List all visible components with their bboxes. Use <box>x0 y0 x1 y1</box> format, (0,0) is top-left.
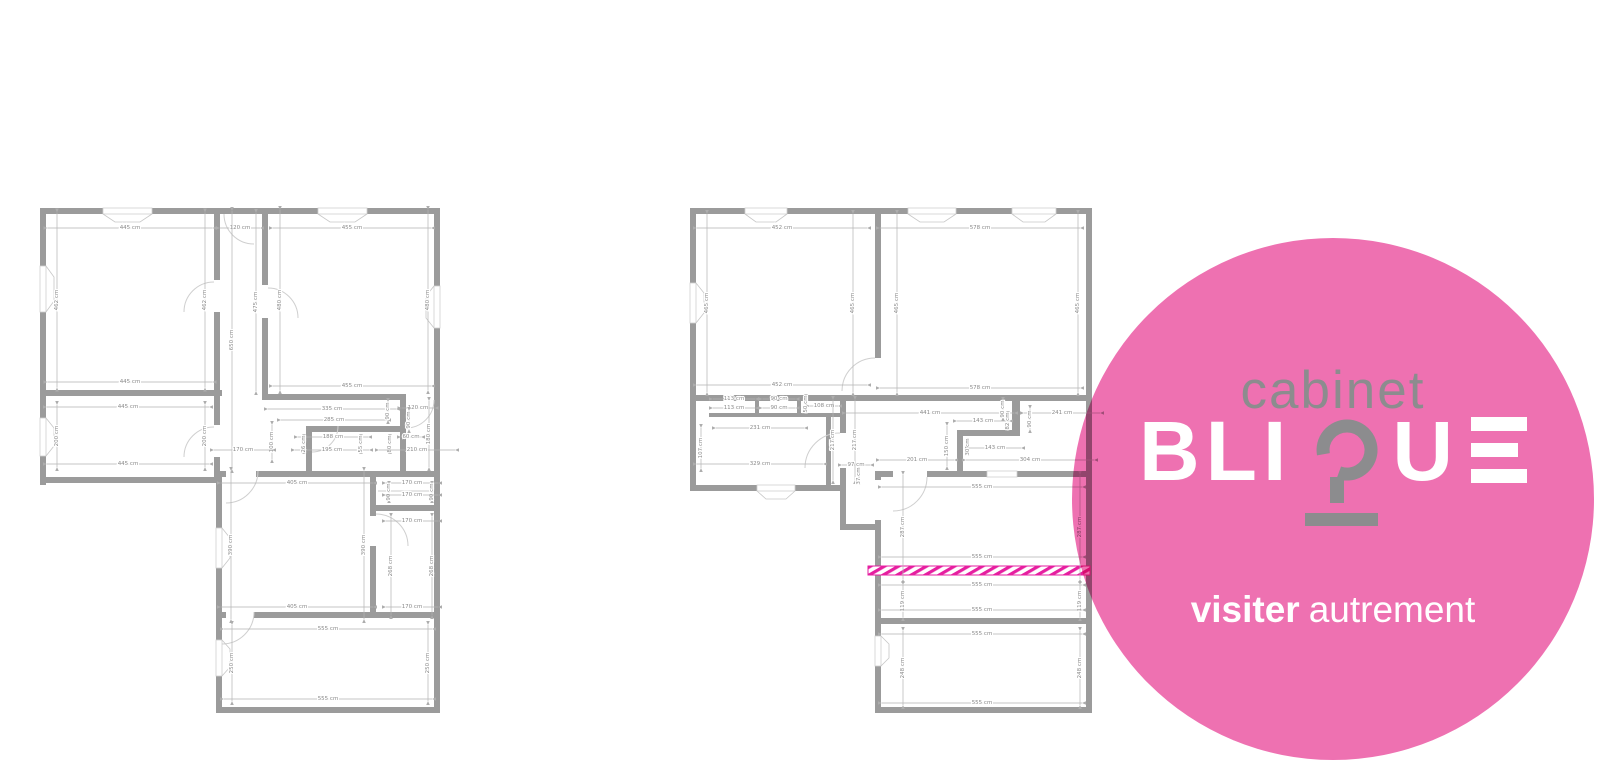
svg-text:335 cm: 335 cm <box>322 406 343 412</box>
windows-left <box>40 208 440 676</box>
dimension-label: 555 cm <box>882 484 1082 490</box>
dimensions-left: 445 cm120 cm455 cm462 cm462 cm650 cm475 … <box>47 210 455 702</box>
svg-text:170 cm: 170 cm <box>402 492 423 498</box>
svg-text:188 cm: 188 cm <box>323 434 344 440</box>
svg-text:441 cm: 441 cm <box>920 410 941 416</box>
dimension-label: 287 cm <box>900 475 906 579</box>
dimension-label: 82 cm <box>1005 412 1011 429</box>
dimension-label: 90 cm <box>1027 409 1033 429</box>
svg-text:210 cm: 210 cm <box>407 447 428 453</box>
svg-text:90 cm: 90 cm <box>386 483 392 500</box>
svg-text:26 cm: 26 cm <box>301 435 307 452</box>
dimension-label: 555 cm <box>882 554 1082 560</box>
svg-text:90 cm: 90 cm <box>429 483 435 500</box>
dimension-label: 107 cm <box>698 428 704 468</box>
svg-text:555 cm: 555 cm <box>972 582 993 588</box>
walls-left <box>40 208 440 713</box>
svg-text:445 cm: 445 cm <box>118 404 139 410</box>
dimensions-right: 452 cm578 cm465 cm465 cm465 cm465 cm452 … <box>697 214 1100 706</box>
dimension-label: 555 cm <box>882 631 1082 637</box>
dimension-label: 555 cm <box>882 700 1082 706</box>
svg-text:60 cm: 60 cm <box>402 434 419 440</box>
dimension-label: 445 cm <box>47 461 209 467</box>
tagline-visiter: visiter <box>1191 589 1300 630</box>
svg-text:231 cm: 231 cm <box>750 425 771 431</box>
svg-text:90 cm: 90 cm <box>385 402 391 419</box>
svg-text:195 cm: 195 cm <box>322 447 343 453</box>
dimension-label: 26 cm <box>301 435 307 452</box>
brand-e-icon <box>1471 417 1527 483</box>
floorplan-left: 445 cm120 cm455 cm462 cm462 cm650 cm475 … <box>40 208 455 713</box>
svg-text:90 cm: 90 cm <box>770 396 787 402</box>
windows-right <box>690 208 1056 666</box>
svg-text:200 cm: 200 cm <box>54 426 60 447</box>
svg-text:90 cm: 90 cm <box>1027 410 1033 427</box>
svg-text:113 cm: 113 cm <box>724 396 745 402</box>
dimension-label: 335 cm <box>268 406 396 412</box>
dimension-label: 113 cm <box>713 405 755 411</box>
dimension-label: 405 cm <box>221 480 373 486</box>
dimension-label: 97 cm <box>842 462 870 468</box>
svg-text:462 cm: 462 cm <box>54 290 60 311</box>
svg-text:555 cm: 555 cm <box>972 700 993 706</box>
svg-text:455 cm: 455 cm <box>342 225 363 231</box>
dimension-label: 452 cm <box>697 382 867 388</box>
dimension-label: 231 cm <box>716 425 804 431</box>
dimension-label: 90 cm <box>406 411 412 429</box>
svg-text:250 cm: 250 cm <box>425 653 431 674</box>
dimension-label: 578 cm <box>880 385 1080 391</box>
svg-text:217 cm: 217 cm <box>830 430 836 451</box>
dimension-label: 650 cm <box>229 211 235 469</box>
svg-text:170 cm: 170 cm <box>233 447 254 453</box>
svg-text:455 cm: 455 cm <box>342 383 363 389</box>
dimension-label: 90 cm <box>763 405 796 411</box>
brand-q-icon <box>1304 417 1380 529</box>
dimension-label: 248 cm <box>900 631 906 705</box>
dimension-label: 201 cm <box>880 457 954 463</box>
svg-text:100 cm: 100 cm <box>269 432 275 453</box>
svg-text:180 cm: 180 cm <box>426 424 432 445</box>
svg-text:480 cm: 480 cm <box>425 290 431 311</box>
dimension-label: 250 cm <box>229 625 235 701</box>
dimension-label: 480 cm <box>277 210 283 390</box>
dimension-label: 390 cm <box>228 471 234 619</box>
dimension-label: 30 cm <box>965 438 971 455</box>
svg-text:108 cm: 108 cm <box>814 403 835 409</box>
dimension-label: 60 cm <box>401 434 421 440</box>
brand-letter-u: U <box>1392 417 1459 485</box>
svg-text:465 cm: 465 cm <box>850 293 856 314</box>
svg-text:143 cm: 143 cm <box>985 445 1006 451</box>
dimension-label: 445 cm <box>48 225 213 231</box>
svg-text:82 cm: 82 cm <box>1005 412 1011 429</box>
dimension-label: 329 cm <box>697 461 823 467</box>
svg-text:90 cm: 90 cm <box>770 405 787 411</box>
dimension-label: 170 cm <box>214 447 272 453</box>
dimension-label: 465 cm <box>894 214 900 392</box>
dimension-label: 441 cm <box>846 410 1014 416</box>
svg-text:445 cm: 445 cm <box>120 379 141 385</box>
svg-text:650 cm: 650 cm <box>229 330 235 351</box>
dimension-label: 555 cm <box>224 626 432 632</box>
dimension-label: 462 cm <box>202 213 208 388</box>
dimension-label: 455 cm <box>273 383 431 389</box>
svg-text:55 cm: 55 cm <box>358 435 364 452</box>
svg-text:30 cm: 30 cm <box>965 438 971 455</box>
svg-text:555 cm: 555 cm <box>972 607 993 613</box>
dimension-label: 480 cm <box>425 210 431 390</box>
svg-text:170 cm: 170 cm <box>402 480 423 486</box>
svg-text:465 cm: 465 cm <box>894 293 900 314</box>
dimension-label: 555 cm <box>882 582 1082 588</box>
svg-text:555 cm: 555 cm <box>318 696 339 702</box>
dimension-label: 285 cm <box>281 417 387 423</box>
svg-text:578 cm: 578 cm <box>970 385 991 391</box>
svg-text:555 cm: 555 cm <box>972 631 993 637</box>
dimension-label: 455 cm <box>273 225 431 231</box>
svg-text:201 cm: 201 cm <box>907 457 928 463</box>
dimension-label: 390 cm <box>361 471 367 619</box>
svg-text:50 cm: 50 cm <box>803 395 809 412</box>
dimension-label: 250 cm <box>425 625 431 701</box>
svg-text:285 cm: 285 cm <box>324 417 345 423</box>
svg-text:445 cm: 445 cm <box>120 225 141 231</box>
dimension-label: 445 cm <box>47 404 209 410</box>
svg-text:287 cm: 287 cm <box>900 517 906 538</box>
svg-text:405 cm: 405 cm <box>287 604 308 610</box>
svg-text:143 cm: 143 cm <box>973 418 994 424</box>
tagline-autrement: autrement <box>1309 589 1476 630</box>
svg-text:390 cm: 390 cm <box>228 535 234 556</box>
dimension-label: 578 cm <box>880 225 1080 231</box>
dimension-label: 465 cm <box>704 214 710 392</box>
svg-text:268 cm: 268 cm <box>388 556 394 577</box>
dimension-label: 143 cm <box>969 445 1021 451</box>
page: 445 cm120 cm455 cm462 cm462 cm650 cm475 … <box>0 0 1600 765</box>
svg-text:445 cm: 445 cm <box>118 461 139 467</box>
dimension-label: 90 cm <box>386 483 392 500</box>
dimension-label: 475 cm <box>253 213 259 391</box>
highlight-strip <box>868 566 1090 575</box>
svg-text:120 cm: 120 cm <box>230 225 251 231</box>
dimension-label: 108 cm <box>810 403 838 409</box>
svg-text:170 cm: 170 cm <box>402 604 423 610</box>
dimension-label: 405 cm <box>221 604 373 610</box>
svg-text:390 cm: 390 cm <box>361 535 367 556</box>
svg-text:217 cm: 217 cm <box>852 430 858 451</box>
svg-text:90 cm: 90 cm <box>406 411 412 428</box>
svg-text:170 cm: 170 cm <box>402 518 423 524</box>
svg-text:250 cm: 250 cm <box>229 653 235 674</box>
svg-text:465 cm: 465 cm <box>704 293 710 314</box>
svg-text:578 cm: 578 cm <box>970 225 991 231</box>
logo-brand: BLI U <box>1139 417 1527 529</box>
svg-text:555 cm: 555 cm <box>318 626 339 632</box>
svg-text:268 cm: 268 cm <box>429 556 435 577</box>
svg-text:120 cm: 120 cm <box>408 405 429 411</box>
dimension-label: 37 cm <box>856 467 862 484</box>
svg-text:475 cm: 475 cm <box>253 292 259 313</box>
floorplan-right: 452 cm578 cm465 cm465 cm465 cm465 cm452 … <box>690 208 1100 713</box>
dimension-label: 268 cm <box>388 517 394 615</box>
svg-text:304 cm: 304 cm <box>1020 457 1041 463</box>
svg-text:462 cm: 462 cm <box>202 290 208 311</box>
svg-text:37 cm: 37 cm <box>856 467 862 484</box>
svg-text:480 cm: 480 cm <box>277 290 283 311</box>
svg-text:452 cm: 452 cm <box>772 382 793 388</box>
logo-tagline: visiterautrement <box>1191 591 1476 628</box>
svg-text:107 cm: 107 cm <box>698 438 704 459</box>
dimension-label: 452 cm <box>697 225 867 231</box>
dimension-label: 143 cm <box>957 418 1009 424</box>
svg-text:241 cm: 241 cm <box>1052 410 1073 416</box>
svg-text:555 cm: 555 cm <box>972 554 993 560</box>
logo: cabinet BLI U visiterautrement <box>1072 238 1594 760</box>
dimension-label: 55 cm <box>358 435 364 452</box>
svg-text:329 cm: 329 cm <box>750 461 771 467</box>
svg-text:555 cm: 555 cm <box>972 484 993 490</box>
dimension-label: 50 cm <box>803 395 809 412</box>
svg-text:200 cm: 200 cm <box>202 426 208 447</box>
brand-letters-bli: BLI <box>1139 417 1292 485</box>
dimension-label: 555 cm <box>882 607 1082 613</box>
dimension-label: 119 cm <box>900 585 906 617</box>
dimension-label: 462 cm <box>54 213 60 388</box>
dimension-label: 90 cm <box>429 483 435 500</box>
dimension-label: 200 cm <box>54 405 60 467</box>
svg-text:405 cm: 405 cm <box>287 480 308 486</box>
svg-text:248 cm: 248 cm <box>900 658 906 679</box>
svg-text:150 cm: 150 cm <box>944 436 950 457</box>
dimension-label: 100 cm <box>269 425 275 459</box>
dimension-label: 120 cm <box>402 405 435 411</box>
svg-text:97 cm: 97 cm <box>847 462 864 468</box>
dimension-label: 445 cm <box>48 379 213 385</box>
dimension-label: 555 cm <box>224 696 432 702</box>
svg-text:119 cm: 119 cm <box>900 591 906 612</box>
dimension-label: 200 cm <box>202 405 208 467</box>
dimension-label: 170 cm <box>386 604 438 610</box>
svg-text:113 cm: 113 cm <box>724 405 745 411</box>
dimension-label: 465 cm <box>850 214 856 392</box>
dimension-label: 90 cm <box>385 402 391 420</box>
svg-text:452 cm: 452 cm <box>772 225 793 231</box>
